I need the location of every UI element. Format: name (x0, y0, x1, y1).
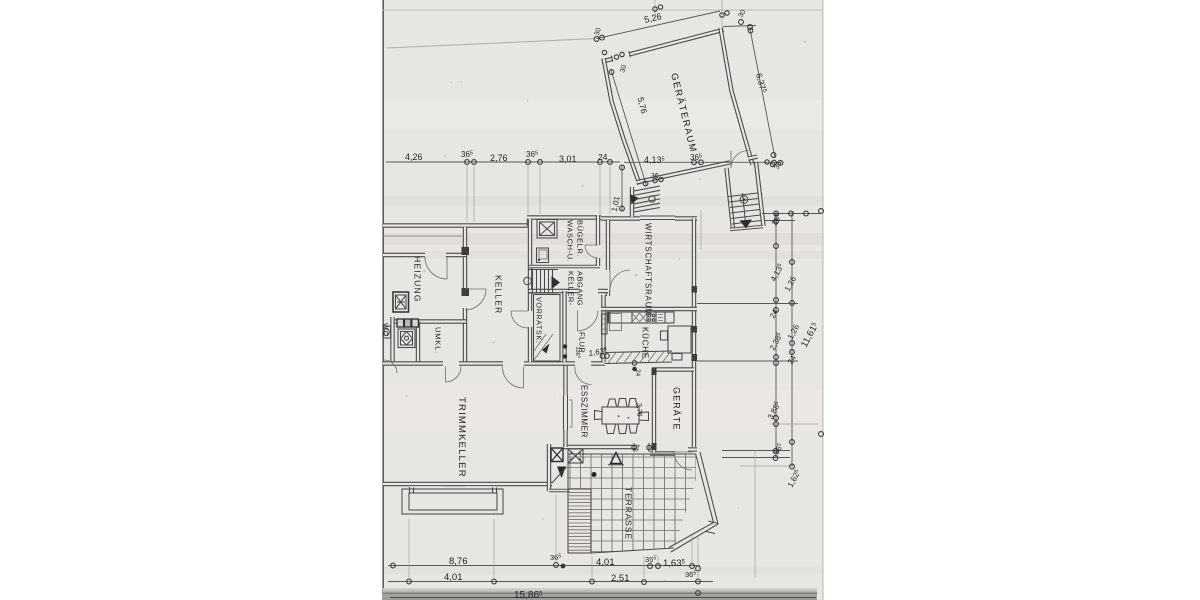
svg-text:TERRASSE: TERRASSE (624, 487, 634, 540)
svg-text:KELLER-: KELLER- (567, 271, 576, 306)
svg-text:15,865: 15,865 (514, 590, 543, 600)
svg-text:2,51: 2,51 (611, 573, 630, 584)
svg-text:24: 24 (598, 152, 608, 162)
svg-text:VORRATSK.: VORRATSK. (535, 297, 544, 343)
svg-text:WASCH-U.: WASCH-U. (566, 220, 575, 262)
svg-text:4,135: 4,135 (644, 155, 665, 165)
svg-text:8,76: 8,76 (449, 556, 468, 567)
svg-text:4,26: 4,26 (405, 152, 423, 162)
svg-text:36: 36 (651, 173, 659, 180)
svg-text:4,01: 4,01 (444, 572, 463, 583)
svg-text:3,01: 3,01 (559, 154, 577, 164)
svg-text:BÜGELR.: BÜGELR. (576, 220, 585, 257)
svg-text:UMKL.: UMKL. (434, 327, 443, 354)
svg-text:KELLER: KELLER (494, 275, 504, 314)
svg-text:2,76: 2,76 (490, 153, 508, 163)
svg-text:4,01: 4,01 (596, 557, 615, 568)
svg-text:3,76: 3,76 (635, 403, 642, 417)
svg-text:FLUR: FLUR (578, 332, 587, 353)
svg-text:TRIMMKELLER: TRIMMKELLER (456, 397, 467, 478)
svg-text:HEIZUNG: HEIZUNG (413, 256, 423, 303)
svg-text:ESSZIMMER: ESSZIMMER (580, 385, 589, 438)
svg-text:KÜCHE: KÜCHE (641, 327, 650, 359)
svg-text:WIRTSCHAFTSRAUM: WIRTSCHAFTSRAUM (644, 223, 653, 316)
svg-text:WC: WC (381, 323, 390, 337)
svg-text:24: 24 (634, 369, 641, 377)
svg-text:GERÄTE: GERÄTE (672, 387, 682, 431)
svg-text:ABGANG: ABGANG (576, 271, 585, 306)
